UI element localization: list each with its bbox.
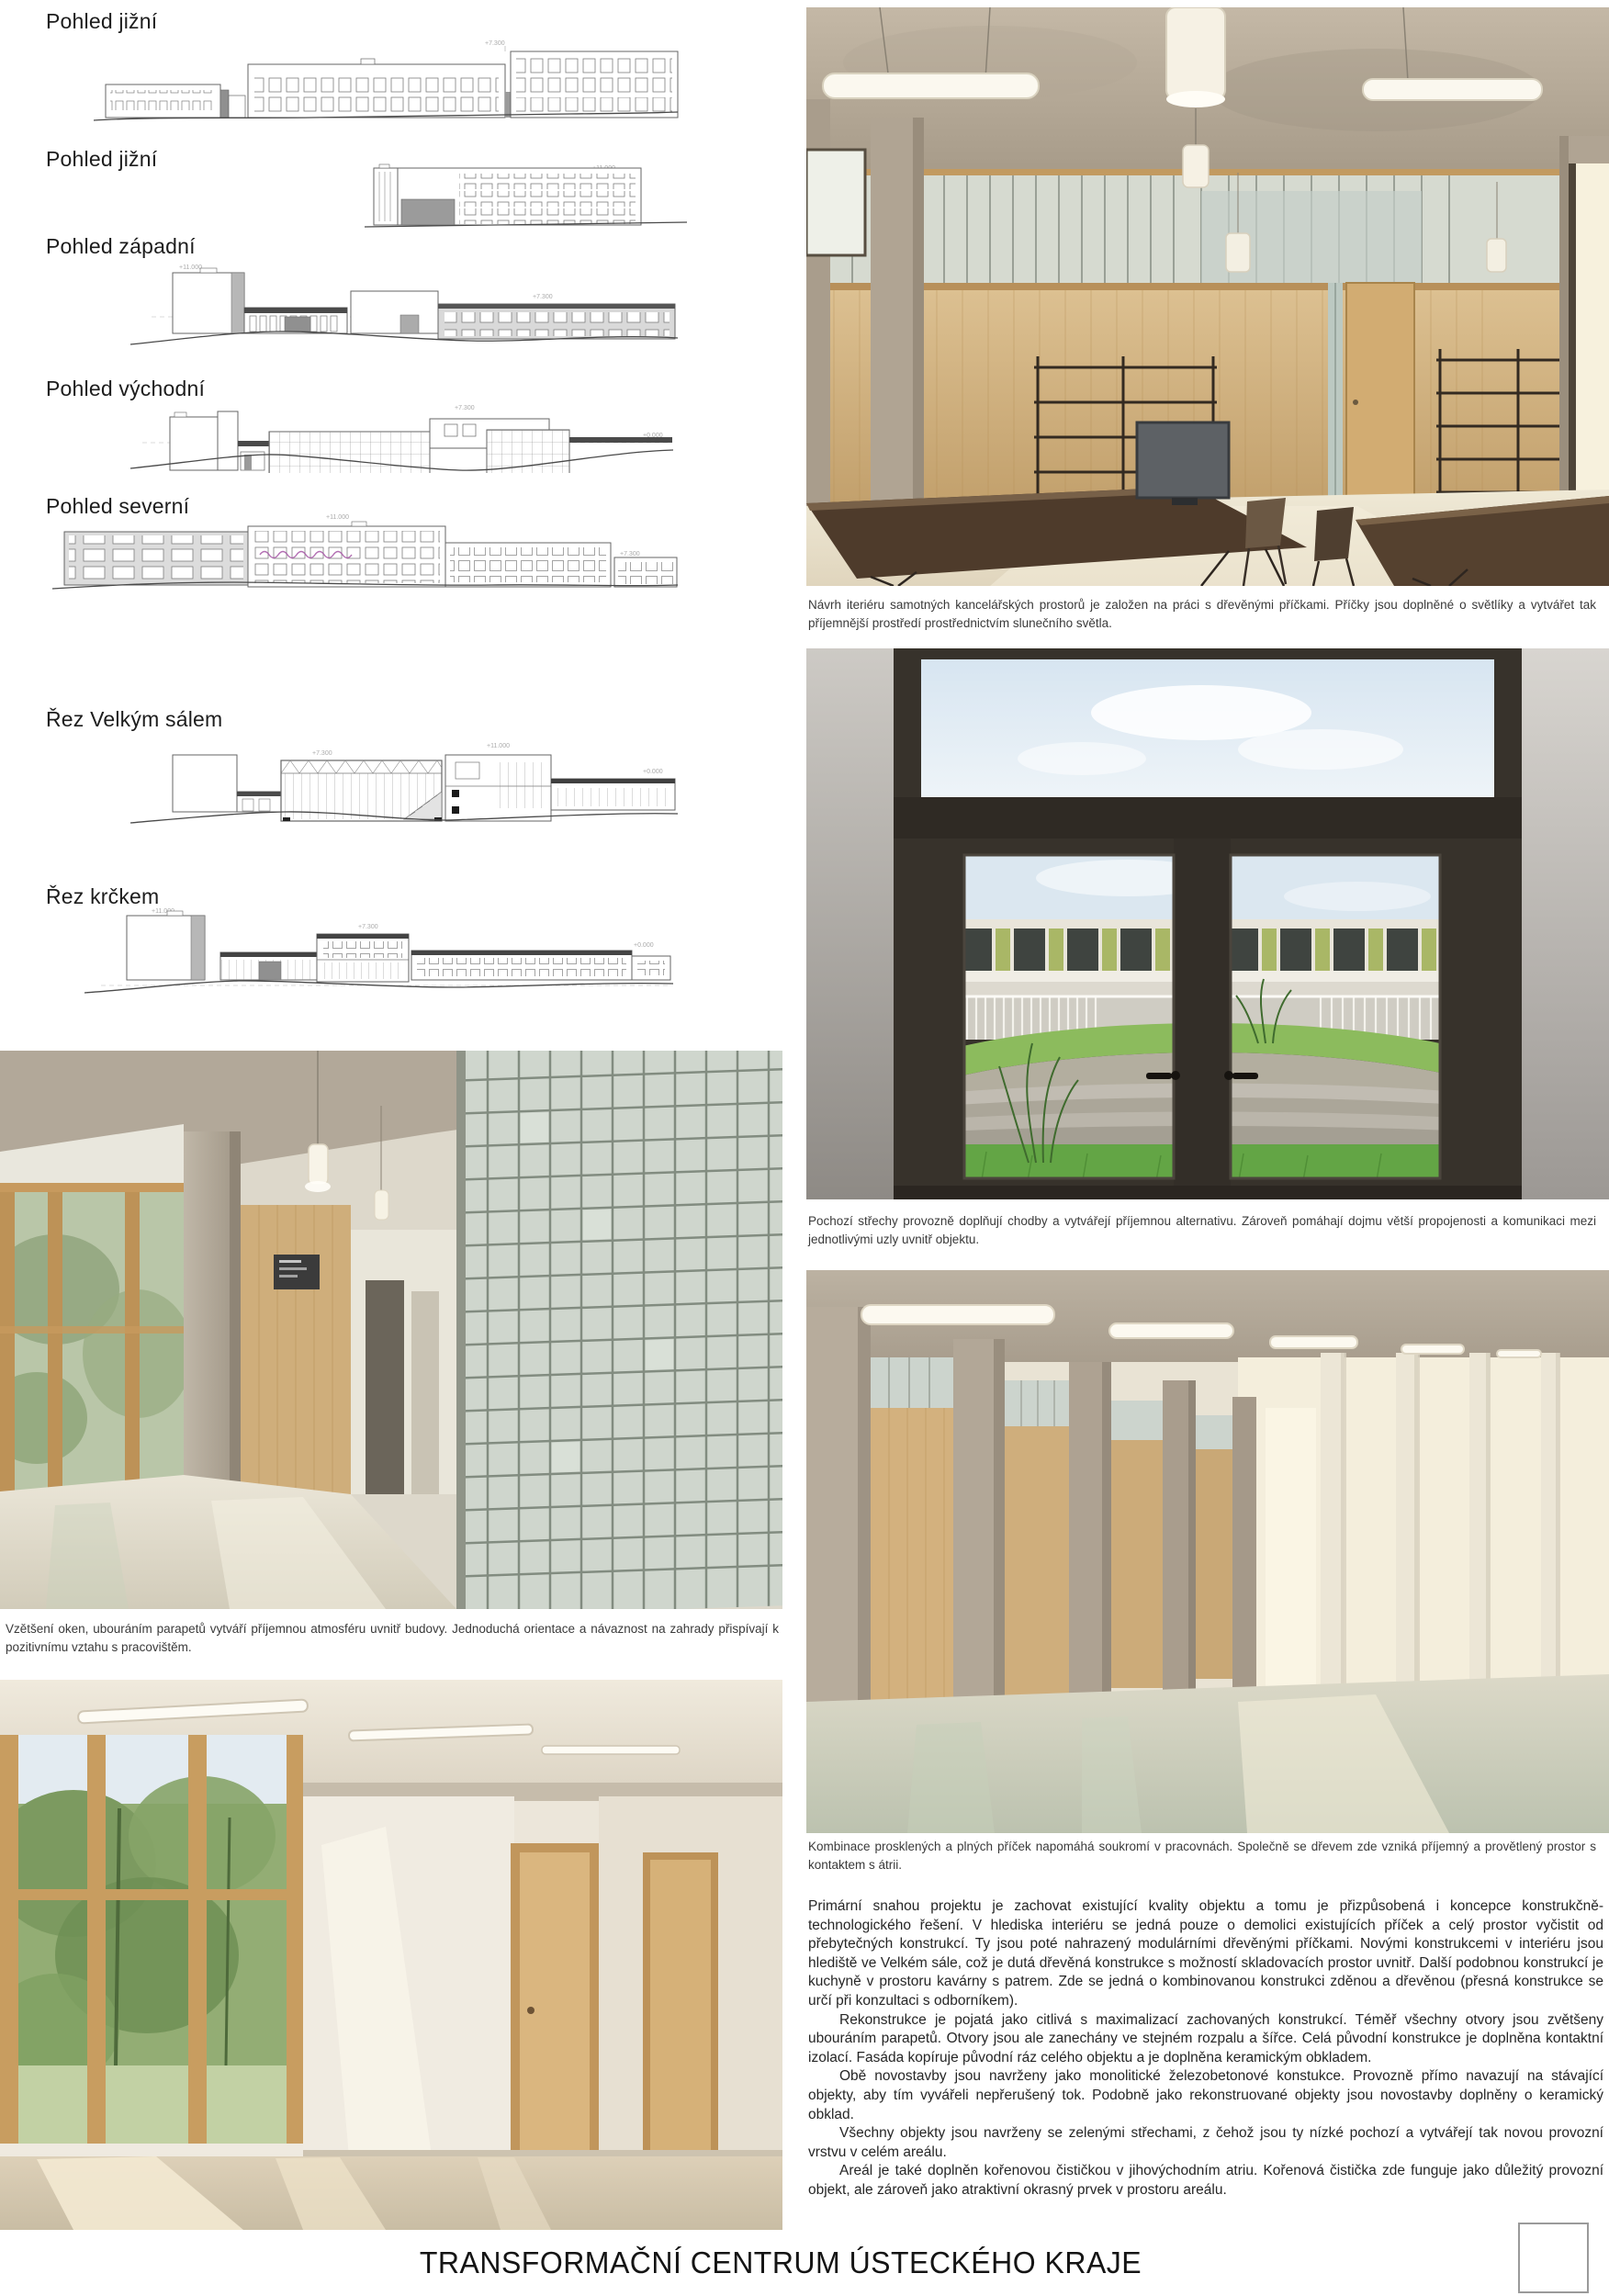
presentation-board: Pohled jižní Pohled jižní Pohled západní… <box>0 0 1609 2296</box>
paragraph-new-buildings: Obě novostavby jsou navrženy jako monoli… <box>808 2067 1603 2124</box>
wood-door <box>643 1852 718 2156</box>
caption-partitions: Kombinace prosklených a plných příček na… <box>808 1838 1596 1874</box>
elevation-label-south-1: Pohled jižní <box>46 9 157 34</box>
elevation-south-2-drawing: +11.000 <box>363 163 689 231</box>
dim-mark: +0.000 <box>634 942 654 949</box>
render-corridor-columns <box>806 1270 1609 1833</box>
caption-roofs: Pochozí střechy provozně doplňují chodby… <box>808 1212 1596 1249</box>
dim-mark: +7.300 <box>485 40 505 47</box>
wood-door <box>511 1843 599 2156</box>
dim-mark: +7.300 <box>620 551 640 557</box>
elevation-west-drawing: +11.000 +7.300 <box>129 260 680 347</box>
section-great-hall-drawing: +7.300 +11.000 +0.000 <box>129 735 680 827</box>
caption-office: Návrh iteriéru samotných kancelářských p… <box>808 596 1596 633</box>
dim-mark: +11.000 <box>179 264 202 271</box>
dim-mark: +7.300 <box>358 924 378 930</box>
dim-mark: +11.000 <box>326 514 349 521</box>
render-corridor-glass-grid <box>0 1051 782 1609</box>
dim-mark: +11.000 <box>487 743 510 749</box>
elevation-east-drawing: +7.300 +0.000 <box>129 395 675 473</box>
section-label-great-hall: Řez Velkým sálem <box>46 707 222 732</box>
render-corridor-windows <box>0 1680 782 2230</box>
section-neck-drawing: +11.000 +7.300 +0.000 <box>83 905 675 996</box>
elevation-label-west: Pohled západní <box>46 234 196 259</box>
paragraph-green-roofs: Všechny objekty jsou navrženy se zeleným… <box>808 2124 1603 2162</box>
poster-title: TRANSFORMAČNÍ CENTRUM ÚSTECKÉHO KRAJE <box>166 2245 1396 2280</box>
paragraph-root-cleaner: Areál je také doplněn kořenovou čističko… <box>808 2162 1603 2200</box>
dim-mark: +7.300 <box>455 405 475 411</box>
window-wall <box>0 1735 303 2158</box>
glass-block-wall <box>456 1051 782 1609</box>
project-description: Primární snahou projektu je zachovat exi… <box>808 1897 1603 2200</box>
corner-placeholder-box <box>1518 2223 1589 2293</box>
caption-windows: Vzětšení oken, ubouráním parapetů vytvář… <box>6 1620 779 1657</box>
dim-mark: +7.300 <box>533 294 553 300</box>
dim-mark: +7.300 <box>312 750 332 757</box>
elevation-south-1-drawing: +7.300 +0.000 <box>92 37 680 124</box>
render-roof-terrace-doors <box>806 648 1609 1199</box>
wayfinding-sign <box>274 1255 320 1289</box>
elevation-label-south-2: Pohled jižní <box>46 147 157 172</box>
dim-mark: +0.000 <box>643 769 663 775</box>
elevation-north-drawing: +11.000 +7.300 <box>51 512 680 590</box>
paragraph-construction: Primární snahou projektu je zachovat exi… <box>808 1897 1603 2011</box>
paragraph-reconstruction: Rekonstrukce je pojatá jako citlivá s ma… <box>808 2011 1603 2068</box>
render-office-interior <box>806 7 1609 586</box>
